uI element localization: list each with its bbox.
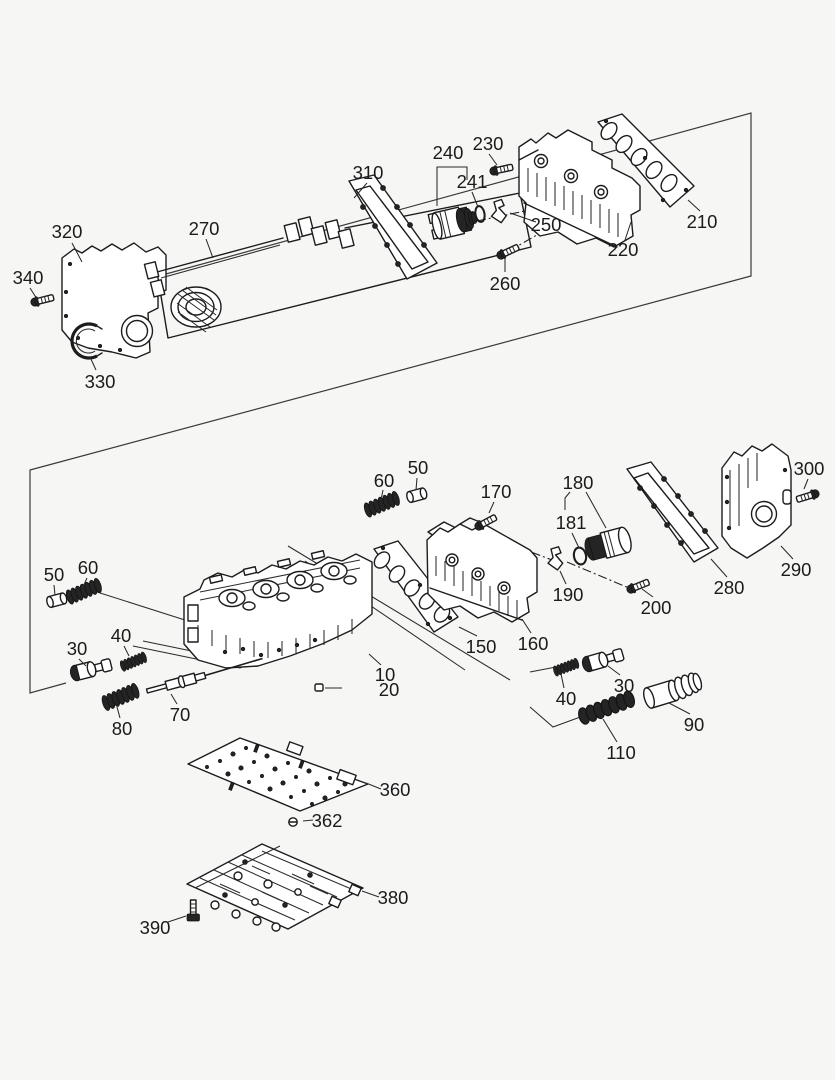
part-label-170: 170: [481, 481, 512, 502]
part-230-bolt: [489, 162, 514, 177]
part-50-left-bushing: [46, 592, 68, 608]
part-label-180: 180: [563, 472, 594, 493]
part-label-110: 110: [606, 742, 636, 763]
part-label-300: 300: [794, 458, 825, 479]
part-label-40-left: 40: [111, 625, 132, 646]
part-label-280: 280: [714, 577, 745, 598]
part-label-60-left: 60: [78, 557, 99, 578]
part-label-50-left: 50: [44, 564, 65, 585]
part-310-gasket: [349, 175, 437, 279]
part-90-piston: [641, 671, 704, 709]
part-label-380: 380: [378, 887, 409, 908]
part-300-bolt: [795, 488, 820, 504]
part-290-end-cover: [722, 444, 791, 558]
part-60-left-spring: [64, 577, 104, 605]
part-label-240: 240: [433, 142, 464, 163]
part-362-screw: [289, 818, 297, 826]
part-30-right-valve: [581, 646, 625, 673]
part-280-gasket: [627, 462, 718, 562]
part-320-end-cover: [62, 243, 221, 358]
part-80-spring: [100, 682, 142, 711]
part-label-230: 230: [473, 133, 504, 154]
part-260-bolt: [495, 242, 520, 261]
part-label-260: 260: [490, 273, 521, 294]
part-40-left-spring: [119, 651, 149, 672]
part-250-detent-lever: [491, 198, 509, 223]
part-label-320: 320: [52, 221, 83, 242]
part-label-90: 90: [684, 714, 705, 735]
part-10-valve-body-main: [184, 551, 372, 668]
part-360-separator-plate: [188, 738, 368, 811]
part-label-40-right: 40: [556, 688, 577, 709]
part-50-top-bushing: [406, 487, 428, 503]
part-label-50-top: 50: [408, 457, 429, 478]
part-380-valve-body-plate: [187, 844, 363, 931]
part-190-detent-lever: [547, 545, 565, 570]
parts-diagram-page: 3203403302703102402412302502602202106050…: [0, 0, 835, 1080]
part-label-270: 270: [189, 218, 220, 239]
part-label-340: 340: [13, 267, 44, 288]
part-180-solenoid: [582, 526, 633, 563]
part-label-80: 80: [112, 718, 133, 739]
part-label-200: 200: [641, 597, 672, 618]
part-label-241: 241: [457, 171, 488, 192]
part-label-250: 250: [531, 214, 562, 235]
part-label-210: 210: [687, 211, 718, 232]
part-label-150: 150: [466, 636, 497, 657]
part-40-right-spring: [552, 658, 580, 677]
part-label-360: 360: [380, 779, 411, 800]
part-label-390: 390: [140, 917, 171, 938]
part-label-310: 310: [353, 162, 384, 183]
exploded-diagram-canvas: 3203403302703102402412302502602202106050…: [0, 0, 835, 1080]
part-label-20: 20: [379, 679, 400, 700]
part-label-190: 190: [553, 584, 584, 605]
part-label-30-right: 30: [614, 675, 635, 696]
part-label-30-left: 30: [67, 638, 88, 659]
part-label-60-top: 60: [374, 470, 395, 491]
part-30-left-valve: [69, 657, 113, 683]
part-label-362: 362: [312, 810, 343, 831]
part-label-181: 181: [556, 512, 587, 533]
part-label-330: 330: [85, 371, 116, 392]
part-340-bolt: [30, 293, 55, 308]
part-label-160: 160: [518, 633, 549, 654]
part-label-220: 220: [608, 239, 639, 260]
part-label-290: 290: [781, 559, 812, 580]
part-390-bolt: [187, 900, 200, 921]
part-160-valve-body-lower: [427, 518, 537, 622]
part-label-70: 70: [170, 704, 191, 725]
part-20-clip: [315, 684, 323, 691]
